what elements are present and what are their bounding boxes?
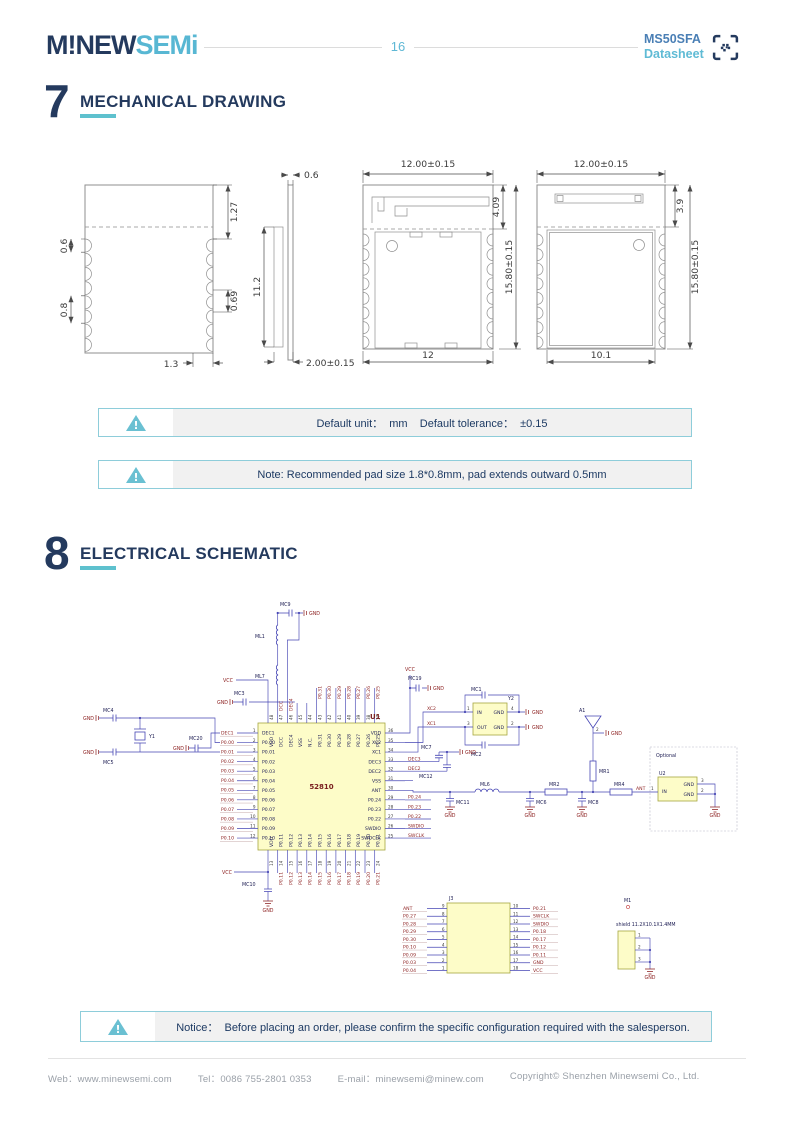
j3-right-pin-8-n: 18 xyxy=(513,966,519,971)
u1-left-pin-7-name: P0.06 xyxy=(221,797,234,803)
u1-left-pin-11-n: 12 xyxy=(250,833,256,838)
j3-right-pin-2-n: 12 xyxy=(513,919,519,924)
vcc-label-bottom: VCC xyxy=(222,870,233,876)
u1-left-pin-9-name: P0.08 xyxy=(262,817,275,823)
notice-3-text: Notice： Before placing an order, please … xyxy=(155,1012,711,1041)
u1-right-pin-3-name: DEC3 xyxy=(368,759,381,765)
u1-right-pin-10-name: SWDIO xyxy=(365,826,381,832)
mc6-ref: MC6 xyxy=(536,800,547,806)
u1-bottom-pin-5-n: 18 xyxy=(317,860,322,866)
m1-body xyxy=(618,931,635,969)
gnd-mc20: GND xyxy=(173,746,184,752)
header-divider-left xyxy=(204,47,382,48)
j3-left-pin-2-n: 7 xyxy=(442,919,445,924)
u1-top-nets: P0.31P0.30P0.29P0.28P0.27P0.26P0.25 xyxy=(317,686,382,703)
u1-part-number: 52810 xyxy=(309,783,333,791)
dim-3-9: 3.9 xyxy=(675,199,686,214)
gnd-u2: GND xyxy=(710,813,721,819)
u1-bottom-net-9-self: P0.20 xyxy=(366,872,372,885)
u1-left-pin-8-name: P0.07 xyxy=(221,807,234,813)
u1-left-pin-3-name: P0.02 xyxy=(262,759,275,765)
u1-top-pin-2-name: DEC4 xyxy=(288,734,294,747)
gnd-y2-bottom: GND xyxy=(532,725,543,731)
scan-icon xyxy=(711,33,740,62)
ant-net: ANT xyxy=(636,786,646,792)
u1-left-pin-10-n: 11 xyxy=(250,824,256,829)
mc20-ref: MC20 xyxy=(189,736,203,742)
u1-right-pin-4-name: DEC2 xyxy=(368,769,381,775)
u1-right-pin-0-n: 36 xyxy=(388,728,394,733)
j3-right-pin-5-n: 15 xyxy=(513,942,519,947)
logo-secondary: SEMi xyxy=(135,30,197,60)
gnd-m1: GND xyxy=(645,975,656,981)
u1-bottom-pin-4-n: 17 xyxy=(308,860,313,866)
j3-right-pin-1-net: SWCLK xyxy=(533,914,550,920)
u1-top-pin-2-n: 46 xyxy=(288,714,293,720)
u1-right-pin-6-name: ANT xyxy=(372,788,382,794)
u1-bottom-pin-6-n: 19 xyxy=(327,860,332,866)
u1-bottom-net-4-self: P0.15 xyxy=(317,872,323,885)
dim-top3-12: 12.00±0.15 xyxy=(401,159,456,170)
u1-bottom-net-7-self: P0.18 xyxy=(347,872,353,885)
y2-in: IN xyxy=(477,710,482,716)
notice-order: ! Notice： Before placing an order, pleas… xyxy=(80,1011,712,1042)
u1-left-pin-5-n: 6 xyxy=(253,776,256,781)
dim-10-1: 10.1 xyxy=(591,350,611,361)
section7-underline xyxy=(80,114,116,118)
j3-left-pin-7-n: 2 xyxy=(442,958,445,963)
notice-default-unit: ! Default unit： mm Default tolerance： ±0… xyxy=(98,408,692,437)
j3-right-pin-3-net: P0.18 xyxy=(533,929,546,935)
u1-right-net-dec-0-self: DEC3 xyxy=(408,756,421,762)
m1-pins: 123 xyxy=(635,933,650,963)
u1-top-net-4-self: P0.27 xyxy=(356,686,362,699)
j3-left-pin-8-n: 1 xyxy=(442,966,445,971)
u1-bottom-pin-8-n: 21 xyxy=(347,860,352,866)
u1-right-pin-2-name: XC1 xyxy=(372,750,381,756)
a1-ref: A1 xyxy=(579,708,585,714)
u1-left-pin-10-name: P0.09 xyxy=(221,826,234,832)
u1-left-pin-2-name: P0.01 xyxy=(262,750,275,756)
mc11-ref: MC11 xyxy=(456,800,470,806)
section7-number: 7 xyxy=(44,78,70,124)
u1-bottom-pin-11-n: 24 xyxy=(376,860,381,866)
datasheet-page: M!NEWSEMi 16 MS50SFADatasheet 7 MECHANIC… xyxy=(0,0,794,1123)
mr1-ref: MR1 xyxy=(599,769,610,775)
mc7-ref: MC7 xyxy=(421,745,432,751)
u2-ref: U2 xyxy=(659,771,666,777)
u1-left-pin-1-name: P0.00 xyxy=(221,740,234,746)
mr4-ref: MR4 xyxy=(614,782,625,788)
dcc-net: DCC xyxy=(279,701,285,711)
dim-top4-12: 12.00±0.15 xyxy=(574,159,629,170)
u1-bottom-pin-9-name: P0.19 xyxy=(356,834,362,847)
u1-bottom-pin-1-n: 14 xyxy=(279,860,284,866)
u1-right-pin-6-n: 30 xyxy=(388,786,394,791)
u1-bottom-pin-11-name: P0.21 xyxy=(376,834,382,847)
section7-title: MECHANICAL DRAWING xyxy=(80,92,286,112)
u1-left-pin-4-name: P0.03 xyxy=(221,769,234,775)
j3-left-pin-1-n: 8 xyxy=(442,911,445,916)
u1-bottom-pin-5-name: P0.15 xyxy=(317,834,323,847)
j3-right-pin-8-net: VCC xyxy=(533,968,543,974)
u1-bottom-pin-1-name: P0.11 xyxy=(279,834,285,847)
mech-top-view: 12.00±0.15 4.09 15.80±0.15 12 xyxy=(363,159,521,364)
section8-underline xyxy=(80,566,116,570)
notice-2-text: Note: Recommended pad size 1.8*0.8mm, pa… xyxy=(173,461,691,488)
notice-pad-size: ! Note: Recommended pad size 1.8*0.8mm, … xyxy=(98,460,692,489)
u1-top-net-1-self: P0.30 xyxy=(327,686,333,699)
m1-shield-desc: shield 11.2X10.1X1.4MM xyxy=(616,922,676,928)
u2-in: IN xyxy=(662,789,667,795)
footer-web: Web：www.minewsemi.com xyxy=(48,1071,172,1085)
u2-pin1: 1 xyxy=(651,786,654,791)
dim-12: 12 xyxy=(422,350,434,361)
u1-bottom-pin-2-name: P0.12 xyxy=(288,834,294,847)
u1-bottom-net-1-self: P0.12 xyxy=(288,872,294,885)
u2-pin2: 2 xyxy=(701,788,704,793)
j3-right-pin-4-net: P0.17 xyxy=(533,937,546,943)
u1-bottom-nets: P0.11P0.12P0.13P0.14P0.15P0.16P0.17P0.18… xyxy=(278,868,382,885)
u1-left-pin-4-name: P0.03 xyxy=(262,769,275,775)
j3-right-pin-1-n: 11 xyxy=(513,911,519,916)
ml7-ref: ML7 xyxy=(255,674,265,680)
doc-type: Datasheet xyxy=(644,47,704,62)
u1-left-pin-1-n: 2 xyxy=(253,738,256,743)
u1-bottom-pin-3-n: 16 xyxy=(298,860,303,866)
u2-gnd1: GND xyxy=(683,782,694,788)
u1-right-pin-8-name: P0.23 xyxy=(368,807,381,813)
mech-front-view: 0.6 0.8 1.27 0.69 1.3 xyxy=(59,185,240,370)
gnd-y2-top: GND xyxy=(532,710,543,716)
u1-left-pin-7-name: P0.06 xyxy=(262,797,275,803)
page-number: 16 xyxy=(384,39,412,54)
j3-right-pin-0-n: 10 xyxy=(513,904,519,909)
u1-left-pin-3-name: P0.02 xyxy=(221,759,234,765)
product-name: MS50SFA xyxy=(644,32,704,47)
u1-right-pin-4-n: 32 xyxy=(388,766,394,771)
u1-right-pin-9-n: 27 xyxy=(388,814,394,819)
u1-right-net-3-self: SWDIO xyxy=(408,823,424,829)
dim-15-80-b: 15.80±0.15 xyxy=(690,240,701,295)
u1-right-net-1-self: P0.23 xyxy=(408,804,421,810)
j3-left-pin-5-n: 4 xyxy=(442,942,445,947)
footer-web-value: www.minewsemi.com xyxy=(78,1074,172,1085)
mc4-ref: MC4 xyxy=(103,708,114,714)
u1-ref: U1 xyxy=(370,713,381,721)
footer-divider xyxy=(48,1058,746,1059)
footer-email-value: minewsemi@minew.com xyxy=(375,1074,483,1085)
u1-left-pin-7-n: 8 xyxy=(253,795,256,800)
u1-top-net-6-self: P0.25 xyxy=(376,686,382,699)
footer-tel-label: Tel： xyxy=(198,1074,220,1085)
u1-left-pin-3-n: 4 xyxy=(253,757,256,762)
j3-body xyxy=(447,903,510,973)
j3-left-pin-6-net: P0.09 xyxy=(403,952,416,958)
u1-top-pin-0-name: VDD xyxy=(269,736,275,747)
u1-left-pin-9-name: P0.08 xyxy=(221,816,234,822)
dim-0-6: 0.6 xyxy=(59,239,70,254)
logo-primary: M!NEW xyxy=(46,30,135,60)
footer-copyright-text: Copyright© Shenzhen Minewsemi Co., Ltd. xyxy=(510,1071,700,1082)
u1-right-net-0-self: P0.24 xyxy=(408,795,421,801)
product-title: MS50SFADatasheet xyxy=(644,32,704,62)
y2-gnd2: GND xyxy=(493,725,504,731)
footer-copyright: Copyright© Shenzhen Minewsemi Co., Ltd. xyxy=(510,1071,700,1085)
svg-text:!: ! xyxy=(115,1023,120,1036)
y2-pin4: 4 xyxy=(511,706,514,711)
u1-right-pin-2-n: 34 xyxy=(388,747,394,752)
m1-pin-1-self: 2 xyxy=(638,945,641,950)
u1-bottom-net-0-self: P0.11 xyxy=(279,872,285,885)
notice-1-icon-cell: ! xyxy=(99,409,173,436)
u1-top-pin-4-n: 44 xyxy=(308,714,313,720)
u1-right-pin-7-name: P0.24 xyxy=(368,797,381,803)
u1-bottom-pin-4-name: P0.14 xyxy=(308,834,314,847)
u1-right-pin-5-n: 31 xyxy=(388,776,394,781)
u1-left-pin-0-name: DEC1 xyxy=(221,730,234,736)
notice-2-icon-cell: ! xyxy=(99,461,173,488)
j3-left-pin-7-net: P0.03 xyxy=(403,960,416,966)
y2-gnd1: GND xyxy=(493,710,504,716)
mech-side-view: 0.6 11.2 2.00±0.15 xyxy=(252,170,355,369)
gnd-mc5: GND xyxy=(83,750,94,756)
j3-right-pin-6-n: 16 xyxy=(513,950,519,955)
m1-pin-2-self: 3 xyxy=(638,957,641,962)
u2-pin3: 3 xyxy=(701,778,704,783)
u1-bottom-pin-0-name: VDD xyxy=(269,836,275,847)
gnd-mc11: GND xyxy=(445,813,456,819)
dim-4-09: 4.09 xyxy=(491,197,502,218)
gnd-mc9: GND xyxy=(309,611,320,617)
gnd-mc8: GND xyxy=(577,813,588,819)
u1-top-net-0-self: P0.31 xyxy=(317,686,323,699)
mc1-ref: MC1 xyxy=(471,687,482,693)
dim-2-00: 2.00±0.15 xyxy=(306,358,355,369)
u1-bottom-net-6-self: P0.17 xyxy=(337,872,343,885)
j3-right-pin-3-n: 13 xyxy=(513,927,519,932)
footer-tel-value: 0086 755-2801 0353 xyxy=(220,1074,311,1085)
ml1-ref: ML1 xyxy=(255,634,265,640)
u1-bottom-pin-0-n: 13 xyxy=(269,860,274,866)
mc12-ref: MC12 xyxy=(419,774,433,780)
u1-left-pin-10-name: P0.09 xyxy=(262,826,275,832)
j3-left-pin-4-n: 5 xyxy=(442,935,445,940)
u1-left-pin-6-name: P0.05 xyxy=(221,788,234,794)
u1-bottom-net-10-self: P0.21 xyxy=(376,872,382,885)
y2-out: OUT xyxy=(477,725,487,731)
gnd-mc4: GND xyxy=(83,716,94,722)
u1-right-net-2-self: P0.22 xyxy=(408,814,421,820)
footer-email-label: E-mail： xyxy=(338,1074,376,1085)
u1-top-pin-11-name: P0.25 xyxy=(376,734,382,747)
y2-ref: Y2 xyxy=(507,696,514,702)
dim-0-69: 0.69 xyxy=(229,291,240,312)
u1-top-net-2-self: P0.29 xyxy=(337,686,343,699)
u1-left-pin-6-name: P0.05 xyxy=(262,788,275,794)
j3-right-pin-5-net: P0.12 xyxy=(533,945,546,951)
j3-right-pins: 10P0.2111SWCLK12SWDIO13P0.1814P0.1715P0.… xyxy=(510,904,558,974)
j3-left-pin-0-net: ANT xyxy=(403,906,413,912)
section8-title: ELECTRICAL SCHEMATIC xyxy=(80,544,298,564)
footer-email: E-mail：minewsemi@minew.com xyxy=(338,1071,484,1085)
vcc-label-right: VCC xyxy=(405,667,416,673)
u1-right-pin-5-name: VSS xyxy=(372,778,381,784)
u1-bottom-net-3-self: P0.14 xyxy=(308,872,314,885)
footer-tel: Tel：0086 755-2801 0353 xyxy=(198,1071,312,1085)
u1-bottom-pin-8-name: P0.18 xyxy=(347,834,353,847)
a1-pin2: 2 xyxy=(596,727,599,732)
u1-right-nets-dec: DEC3DEC2 xyxy=(405,756,431,772)
junction-dots xyxy=(139,612,716,963)
dec4-net: DEC4 xyxy=(288,698,294,711)
dim-0-8: 0.8 xyxy=(59,303,70,318)
j3-right-pin-4-n: 14 xyxy=(513,935,519,940)
u1-left-pin-2-name: P0.01 xyxy=(221,750,234,756)
xc2-net: XC2 xyxy=(427,706,436,712)
u1-right-pin-10-n: 26 xyxy=(388,824,394,829)
u1-right-pin-11-n: 25 xyxy=(388,833,394,838)
y1-ref: Y1 xyxy=(148,734,155,740)
notice-1-text: Default unit： mm Default tolerance： ±0.1… xyxy=(173,409,691,436)
mech-bottom-view: 12.00±0.15 3.9 15.80±0.15 10.1 xyxy=(537,159,701,364)
mc10-ref: MC10 xyxy=(242,882,256,888)
u1-right-net-4-self: SWCLK xyxy=(408,833,425,839)
j3-left-pin-8-net: P0.04 xyxy=(403,968,416,974)
y2-pin3: 3 xyxy=(467,721,470,726)
u1-left-pin-5-name: P0.04 xyxy=(262,778,275,784)
dim-1-3: 1.3 xyxy=(164,359,179,370)
u1-left-pin-9-n: 10 xyxy=(250,814,256,819)
m1-pin-0-self: 1 xyxy=(638,933,641,938)
u1-left-pin-8-n: 9 xyxy=(253,805,256,810)
brand-logo: M!NEWSEMi xyxy=(46,30,198,61)
u2-gnd2: GND xyxy=(683,792,694,798)
u1-left-pin-5-name: P0.04 xyxy=(221,778,234,784)
j3-left-pin-6-n: 3 xyxy=(442,950,445,955)
mc8-ref: MC8 xyxy=(588,800,599,806)
y2-pin2: 2 xyxy=(511,721,514,726)
m1-ref: M1 xyxy=(624,898,631,904)
u1-left-pin-4-n: 5 xyxy=(253,766,256,771)
u1-top-pin-8-name: P0.28 xyxy=(347,734,353,747)
u1-right-pin-8-n: 28 xyxy=(388,805,394,810)
u1-top-pin-7-n: 41 xyxy=(337,714,342,720)
svg-text:!: ! xyxy=(133,471,138,484)
j3-left-pin-4-net: P0.30 xyxy=(403,937,416,943)
gnd-mc19: GND xyxy=(433,686,444,692)
u1-right-net-dec-1-self: DEC2 xyxy=(408,766,421,772)
j3-right-pin-0-net: P0.21 xyxy=(533,906,546,912)
u1-left-pin-8-name: P0.07 xyxy=(262,807,275,813)
mc3-ref: MC3 xyxy=(234,691,245,697)
u1-right-pin-7-n: 29 xyxy=(388,795,394,800)
gnd-mc7: GND xyxy=(465,750,476,756)
dim-11-2: 11.2 xyxy=(252,277,263,297)
j3-left-pin-3-n: 6 xyxy=(442,927,445,932)
u1-top-pin-9-n: 39 xyxy=(356,714,361,720)
u1-bottom-net-5-self: P0.16 xyxy=(327,872,333,885)
section8-number: 8 xyxy=(44,530,70,576)
svg-text:!: ! xyxy=(133,419,138,432)
u1-top-pin-7-name: P0.29 xyxy=(337,734,343,747)
j3-left-pins: 9ANT8P0.277P0.286P0.295P0.304P0.103P0.09… xyxy=(402,904,447,974)
u1-top-pin-4-name: N.C. xyxy=(308,737,314,747)
u1-bottom-net-2-self: P0.13 xyxy=(298,872,304,885)
u1-top-pin-1-n: 47 xyxy=(279,714,284,720)
dim-side-0-6: 0.6 xyxy=(304,170,319,181)
u1-top-pin-5-name: P0.31 xyxy=(317,734,323,747)
footer: Web：www.minewsemi.com Tel：0086 755-2801 … xyxy=(48,1071,774,1085)
u1-top-pin-1-name: DCC xyxy=(279,737,285,747)
schematic-labels: U1 52810 MC9 ML1 ML7 MC3 MC4 Y1 MC5 MC20… xyxy=(83,602,721,981)
gnd-a1: GND xyxy=(611,731,622,737)
u1-right-pin-1-n: 35 xyxy=(388,738,394,743)
u1-top-pin-0-n: 48 xyxy=(269,714,274,720)
j3-left-pin-1-net: P0.27 xyxy=(403,914,416,920)
gnd-mc10: GND xyxy=(263,908,274,914)
u1-top-pin-6-n: 42 xyxy=(327,714,332,720)
j3-right-pin-6-net: P0.11 xyxy=(533,952,546,958)
gnd-mc6: GND xyxy=(525,813,536,819)
dim-1-27: 1.27 xyxy=(229,202,240,223)
u1-bottom-pin-7-name: P0.17 xyxy=(337,834,343,847)
mr2-ref: MR2 xyxy=(549,782,560,788)
warning-icon: ! xyxy=(125,414,147,432)
u1-top-net-3-self: P0.28 xyxy=(347,686,353,699)
u1-left-pin-6-n: 7 xyxy=(253,786,256,791)
dim-15-80-a: 15.80±0.15 xyxy=(504,240,515,295)
u1-top-pin-3-n: 45 xyxy=(298,714,303,720)
warning-icon: ! xyxy=(107,1018,129,1036)
u1-right-pin-9-name: P0.22 xyxy=(368,817,381,823)
u1-bottom-pin-6-name: P0.16 xyxy=(327,834,333,847)
j3-right-pin-7-net: GND xyxy=(533,960,544,966)
u1-top-pin-6-name: P0.30 xyxy=(327,734,333,747)
u1-top-pin-9-name: P0.27 xyxy=(356,734,362,747)
u1-left-pin-0-n: 1 xyxy=(253,728,256,733)
u1-top-pin-3-name: VSS xyxy=(298,738,304,747)
u1-top-net-5-self: P0.26 xyxy=(366,686,372,699)
xc1-net: XC1 xyxy=(427,721,436,727)
mc9-ref: MC9 xyxy=(280,602,291,608)
vcc-label-left: VCC xyxy=(223,678,234,684)
header-divider-right xyxy=(414,47,638,48)
j3-right-pin-2-net: SWDIO xyxy=(533,921,549,927)
u1-top-pin-5-n: 43 xyxy=(317,714,322,720)
optional-label: Optional xyxy=(656,753,676,759)
j3-ref: J3 xyxy=(448,896,453,902)
u1-bottom-pin-2-n: 15 xyxy=(288,860,293,866)
u1-bottom-pin-3-name: P0.13 xyxy=(298,834,304,847)
u1-bottom-pin-7-n: 20 xyxy=(337,860,342,866)
u1-bottom-pin-9-n: 22 xyxy=(356,860,361,866)
electrical-schematic: 1DEC1DEC12P0.00P0.003P0.01P0.014P0.02P0.… xyxy=(75,585,745,1000)
u1-right-nets: P0.24P0.23P0.22SWDIOSWCLK xyxy=(405,795,431,839)
u1-top-pin-10-name: P0.26 xyxy=(366,734,372,747)
footer-web-label: Web： xyxy=(48,1074,78,1085)
warning-icon: ! xyxy=(125,466,147,484)
u1-bottom-pin-10-n: 23 xyxy=(366,860,371,866)
u1-right-pin-3-n: 33 xyxy=(388,757,394,762)
j3-left-pin-5-net: P0.10 xyxy=(403,945,416,951)
notice-3-icon-cell: ! xyxy=(81,1012,155,1041)
u1-left-pin-11-name: P0.10 xyxy=(221,835,234,841)
u1-top-pin-8-n: 40 xyxy=(347,714,352,720)
ml6-ref: ML6 xyxy=(480,782,490,788)
j3-right-pin-7-n: 17 xyxy=(513,958,519,963)
mechanical-drawing: 0.6 0.8 1.27 0.69 1.3 0.6 11.2 2.00±0.15 xyxy=(55,150,745,400)
